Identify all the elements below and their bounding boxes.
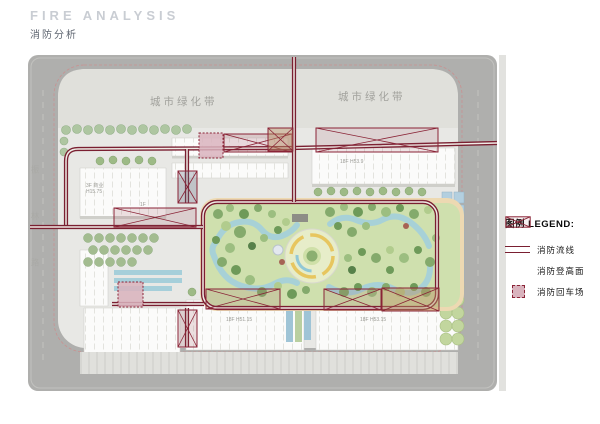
crossed-box-tan: [382, 288, 439, 311]
turnaround-square: [199, 133, 223, 158]
building-label: 18F H53.15: [360, 318, 386, 324]
crossed-box: [178, 171, 197, 203]
water-strips: [286, 306, 311, 342]
crossed-box: [316, 128, 438, 152]
crossed-box: [114, 208, 196, 227]
page-title-en: FIRE ANALYSIS: [30, 8, 179, 23]
legend-panel: 图例 LEGEND: 消防流线 消防登高面 消防回车场: [505, 216, 597, 306]
building-label: H15.75: [86, 190, 102, 196]
crossed-box: [324, 289, 381, 310]
dotted-square-icon: [505, 285, 532, 298]
fire-analysis-page: FIRE ANALYSIS 消防分析 城市绿化带 城市绿化带 振林路 18F H…: [0, 0, 600, 424]
road-name-left: 振林路: [29, 165, 41, 305]
green-belt-label-right: 城市绿化带: [338, 89, 406, 104]
fire-route-line-icon: [505, 246, 532, 253]
turnaround-square: [118, 282, 143, 307]
crossed-box: [178, 310, 197, 347]
crossed-box: [206, 289, 280, 309]
page-title-zh: 消防分析: [30, 26, 78, 41]
building-label: 18F H51.15: [226, 318, 252, 324]
legend-item-fire-route: 消防流线: [505, 243, 597, 256]
legend-item-ladder-surface: 消防登高面: [505, 264, 597, 277]
legend-item-label: 消防登高面: [537, 265, 585, 277]
green-belt-label-left: 城市绿化带: [150, 94, 218, 109]
legend-item-label: 消防回车场: [537, 286, 585, 298]
building-label: 1F: [140, 203, 146, 209]
building-label: 18F H53.9: [340, 160, 363, 166]
crossed-box-tan: [268, 128, 293, 151]
legend-item-turnaround: 消防回车场: [505, 285, 597, 298]
legend-item-label: 消防流线: [537, 244, 575, 256]
site-plan: [0, 0, 600, 424]
